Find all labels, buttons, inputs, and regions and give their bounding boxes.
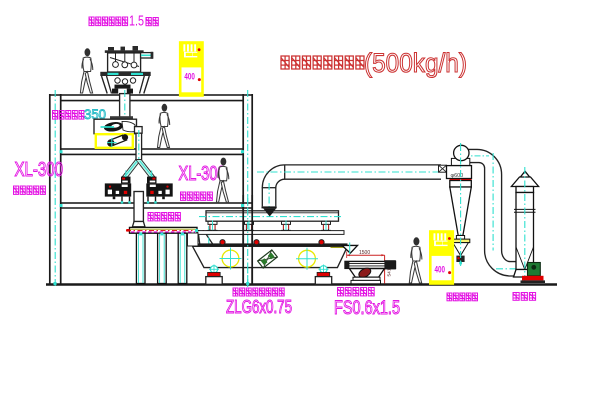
svg-text:541: 541 — [387, 268, 393, 276]
svg-text:FS0.6x1.5: FS0.6x1.5 — [334, 298, 400, 319]
svg-text:400: 400 — [184, 72, 195, 82]
svg-text:(500kg/h): (500kg/h) — [364, 48, 467, 78]
svg-text:1500: 1500 — [359, 250, 370, 256]
svg-text:1.5: 1.5 — [129, 14, 144, 30]
svg-text:ZLG6x0.75: ZLG6x0.75 — [226, 297, 292, 317]
svg-text:φ600: φ600 — [451, 173, 464, 179]
svg-text:400: 400 — [435, 265, 446, 275]
svg-text:XL-300: XL-300 — [15, 159, 64, 181]
